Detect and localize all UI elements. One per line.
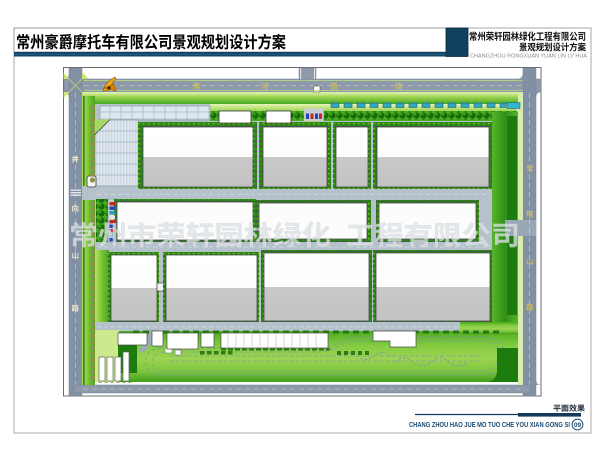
svg-text:CHANGZHOU RONGXUAN YUAN LIN LV: CHANGZHOU RONGXUAN YUAN LIN LV HUA xyxy=(470,54,588,60)
svg-text:CHANG ZHOU HAO JUE MO TUO CHE: CHANG ZHOU HAO JUE MO TUO CHE YOU XIAN G… xyxy=(409,420,570,429)
svg-text:09: 09 xyxy=(574,422,582,429)
